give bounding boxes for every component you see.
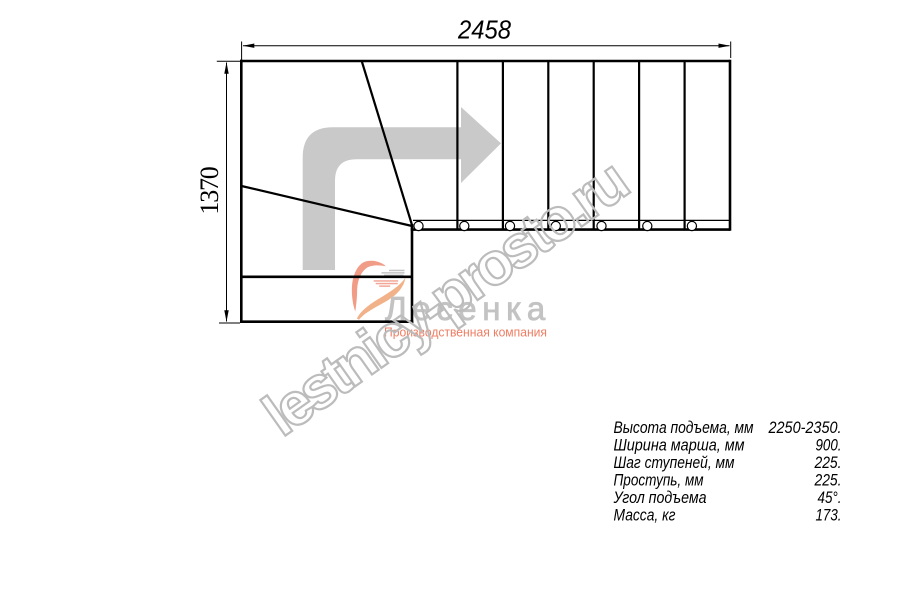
svg-text:Ширина марша, мм: Ширина марша, мм	[614, 436, 745, 455]
svg-text:Высота подъема, мм: Высота подъема, мм	[614, 418, 754, 437]
svg-text:225.: 225.	[814, 471, 842, 490]
svg-text:173.: 173.	[816, 506, 842, 525]
svg-text:Угол подъема: Угол подъема	[613, 488, 707, 507]
svg-text:225.: 225.	[814, 453, 842, 472]
svg-text:1370: 1370	[195, 166, 224, 214]
svg-text:Масса, кг: Масса, кг	[614, 506, 676, 525]
svg-text:2458: 2458	[457, 17, 512, 45]
svg-text:Шаг ступеней, мм: Шаг ступеней, мм	[614, 453, 735, 472]
svg-text:45°.: 45°.	[818, 488, 842, 507]
svg-text:900.: 900.	[816, 436, 842, 455]
svg-text:Проступь, мм: Проступь, мм	[614, 471, 704, 490]
svg-text:2250-2350.: 2250-2350.	[768, 418, 842, 437]
